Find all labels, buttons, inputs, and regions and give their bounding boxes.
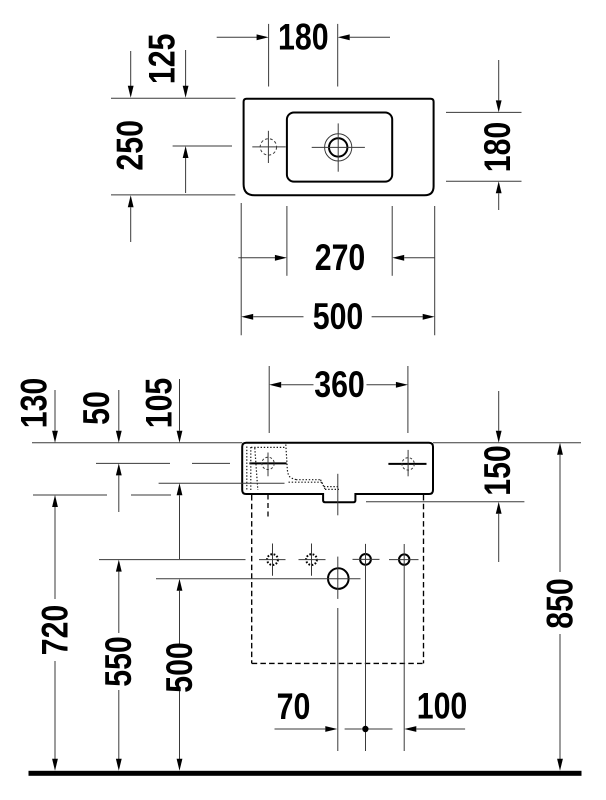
svg-text:100: 100 (417, 686, 468, 728)
svg-text:150: 150 (477, 445, 519, 496)
svg-text:850: 850 (540, 578, 582, 629)
svg-text:720: 720 (35, 605, 77, 656)
svg-text:550: 550 (98, 636, 140, 687)
svg-text:70: 70 (277, 686, 311, 728)
svg-text:180: 180 (278, 17, 329, 59)
svg-text:130: 130 (14, 378, 56, 429)
svg-text:50: 50 (76, 391, 118, 425)
svg-text:125: 125 (141, 33, 183, 84)
svg-text:250: 250 (110, 120, 152, 171)
svg-text:360: 360 (314, 364, 365, 406)
svg-text:500: 500 (159, 642, 201, 693)
svg-text:105: 105 (139, 378, 181, 429)
svg-text:270: 270 (315, 237, 366, 279)
svg-text:180: 180 (477, 122, 519, 173)
svg-text:500: 500 (313, 296, 364, 338)
